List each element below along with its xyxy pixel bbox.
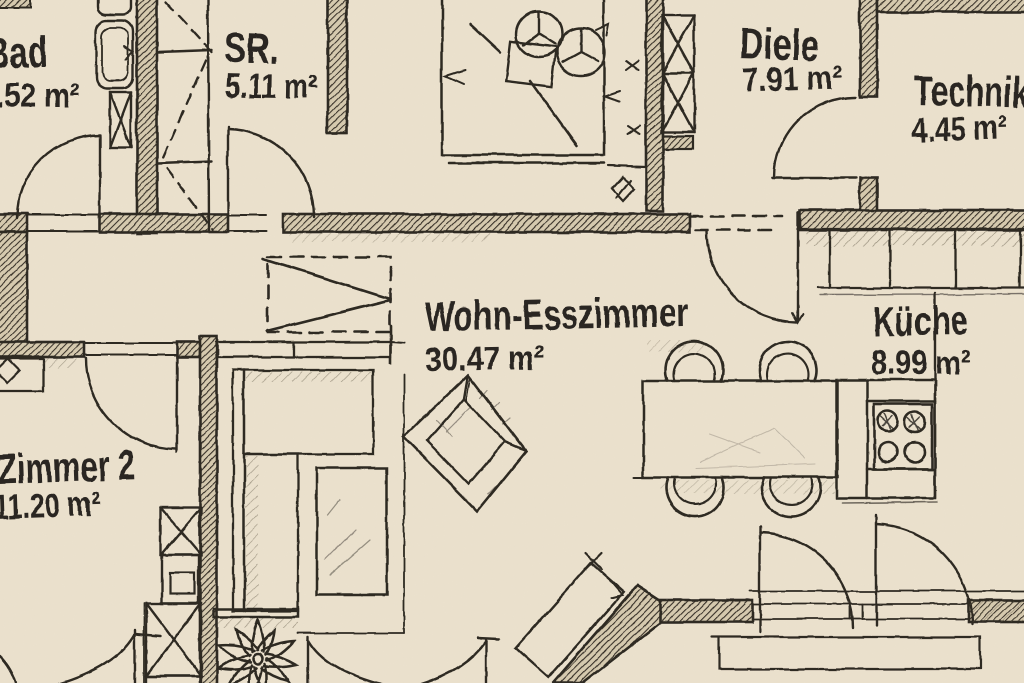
- svg-text:5.11 m²: 5.11 m²: [225, 66, 318, 106]
- svg-text:Küche: Küche: [872, 297, 968, 345]
- svg-text:Bad: Bad: [0, 28, 48, 78]
- svg-text:11.20 m²: 11.20 m²: [0, 484, 102, 526]
- svg-text:8.99 m²: 8.99 m²: [871, 343, 971, 382]
- svg-text:4.45 m²: 4.45 m²: [911, 108, 1008, 150]
- svg-text:30.47 m²: 30.47 m²: [424, 338, 544, 378]
- svg-text:Wohn-Esszimmer: Wohn-Esszimmer: [424, 288, 688, 340]
- svg-text:7.91 m²: 7.91 m²: [742, 57, 843, 99]
- svg-text:3.52 m²: 3.52 m²: [0, 76, 80, 115]
